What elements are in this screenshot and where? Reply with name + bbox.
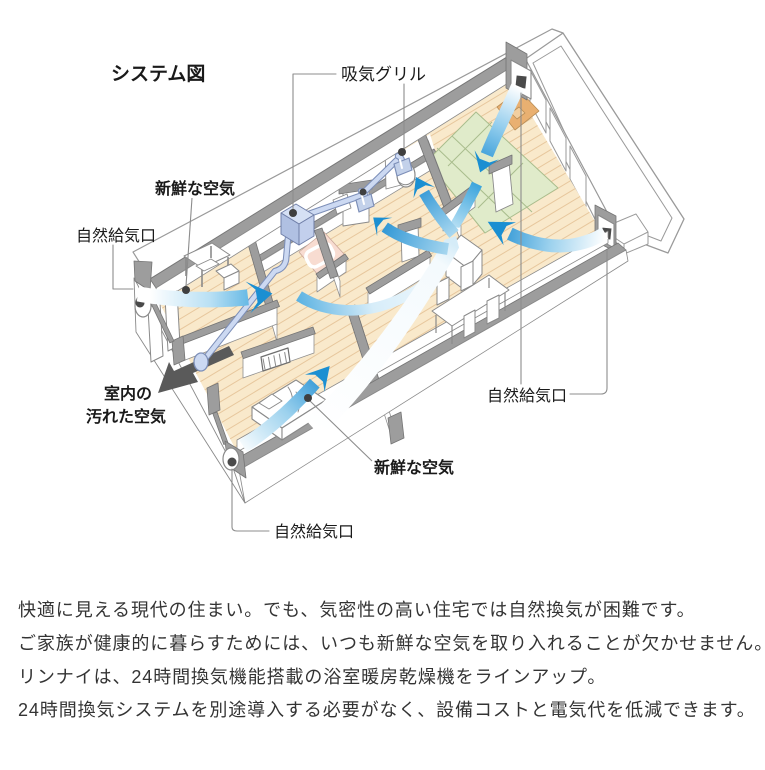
- svg-text:新鮮な空気: 新鮮な空気: [374, 458, 454, 477]
- svg-text:システム図: システム図: [111, 63, 205, 85]
- svg-text:吸気グリル: 吸気グリル: [341, 65, 426, 84]
- svg-text:室内の: 室内の: [104, 384, 152, 403]
- svg-text:新鮮な空気: 新鮮な空気: [155, 179, 235, 198]
- svg-text:24時間換気システムを別途導入する必要がなく、設備コストと電: 24時間換気システムを別途導入する必要がなく、設備コストと電気代を低減できます。: [18, 700, 756, 720]
- svg-text:自然給気口: 自然給気口: [487, 387, 567, 405]
- svg-text:汚れた空気: 汚れた空気: [86, 407, 166, 426]
- svg-text:リンナイは、24時間換気機能搭載の浴室暖房乾燥機をラインアッ: リンナイは、24時間換気機能搭載の浴室暖房乾燥機をラインアップ。: [18, 667, 606, 687]
- svg-text:自然給気口: 自然給気口: [76, 227, 156, 245]
- svg-text:快適に見える現代の住まい。でも、気密性の高い住宅では自然換気: 快適に見える現代の住まい。でも、気密性の高い住宅では自然換気が困難です。: [18, 600, 696, 620]
- svg-text:自然給気口: 自然給気口: [274, 523, 354, 541]
- svg-text:ご家族が健康的に暮らすためには、いつも新鮮な空気を取り入れる: ご家族が健康的に暮らすためには、いつも新鮮な空気を取り入れることが欠かせません。: [18, 633, 765, 653]
